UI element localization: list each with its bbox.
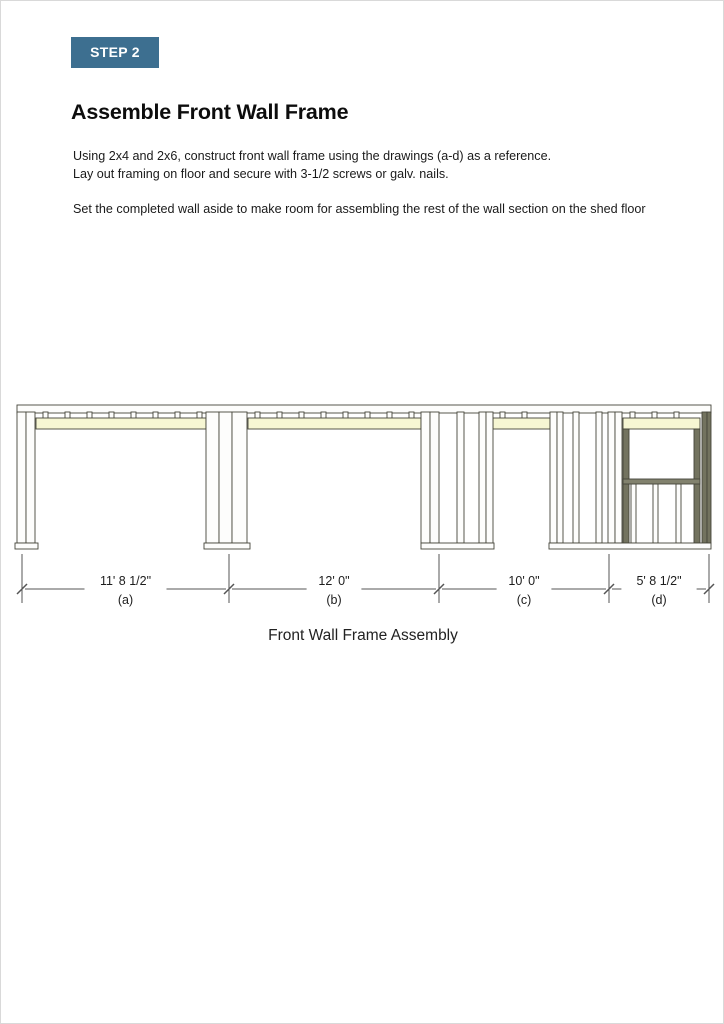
stud: [430, 412, 439, 543]
dimension-label: (d): [651, 593, 666, 607]
dimension-label: (c): [517, 593, 532, 607]
bottom-plate: [549, 543, 711, 549]
window-sill: [623, 479, 700, 484]
stud: [608, 412, 615, 543]
header-beam: [248, 418, 421, 429]
drawing-caption: Front Wall Frame Assembly: [1, 627, 724, 645]
dimension-value: 12' 0": [318, 574, 349, 588]
stud: [457, 412, 464, 543]
dimension-value: 11' 8 1/2": [100, 574, 151, 588]
top-plate: [17, 405, 711, 413]
stud: [232, 412, 247, 543]
dimension-value: 5' 8 1/2": [636, 574, 681, 588]
stud: [631, 484, 636, 543]
dimension-label: (b): [326, 593, 341, 607]
stud: [206, 412, 219, 543]
stud: [486, 412, 493, 543]
stud: [707, 412, 711, 543]
stud: [653, 484, 658, 543]
stud: [702, 412, 707, 543]
dimension-label: (a): [118, 593, 133, 607]
stud: [219, 412, 232, 543]
bottom-plate: [204, 543, 250, 549]
stud: [623, 429, 629, 543]
stud: [573, 412, 579, 543]
stud: [557, 412, 563, 543]
stud: [26, 412, 35, 543]
dimension-value: 10' 0": [508, 574, 539, 588]
stud: [479, 412, 486, 543]
header-beam: [36, 418, 206, 429]
stud: [694, 429, 700, 543]
stud: [421, 412, 430, 543]
stud: [596, 412, 602, 543]
bottom-plate: [421, 543, 494, 549]
wall-frame-drawing: 11' 8 1/2"(a)12' 0"(b)10' 0"(c)5' 8 1/2"…: [1, 1, 724, 1024]
instruction-page: STEP 2 Assemble Front Wall Frame Using 2…: [0, 0, 724, 1024]
bottom-plate: [15, 543, 38, 549]
header-beam: [623, 418, 700, 429]
header-beam: [493, 418, 550, 429]
stud: [615, 412, 622, 543]
stud: [550, 412, 557, 543]
stud: [17, 412, 26, 543]
stud: [676, 484, 681, 543]
